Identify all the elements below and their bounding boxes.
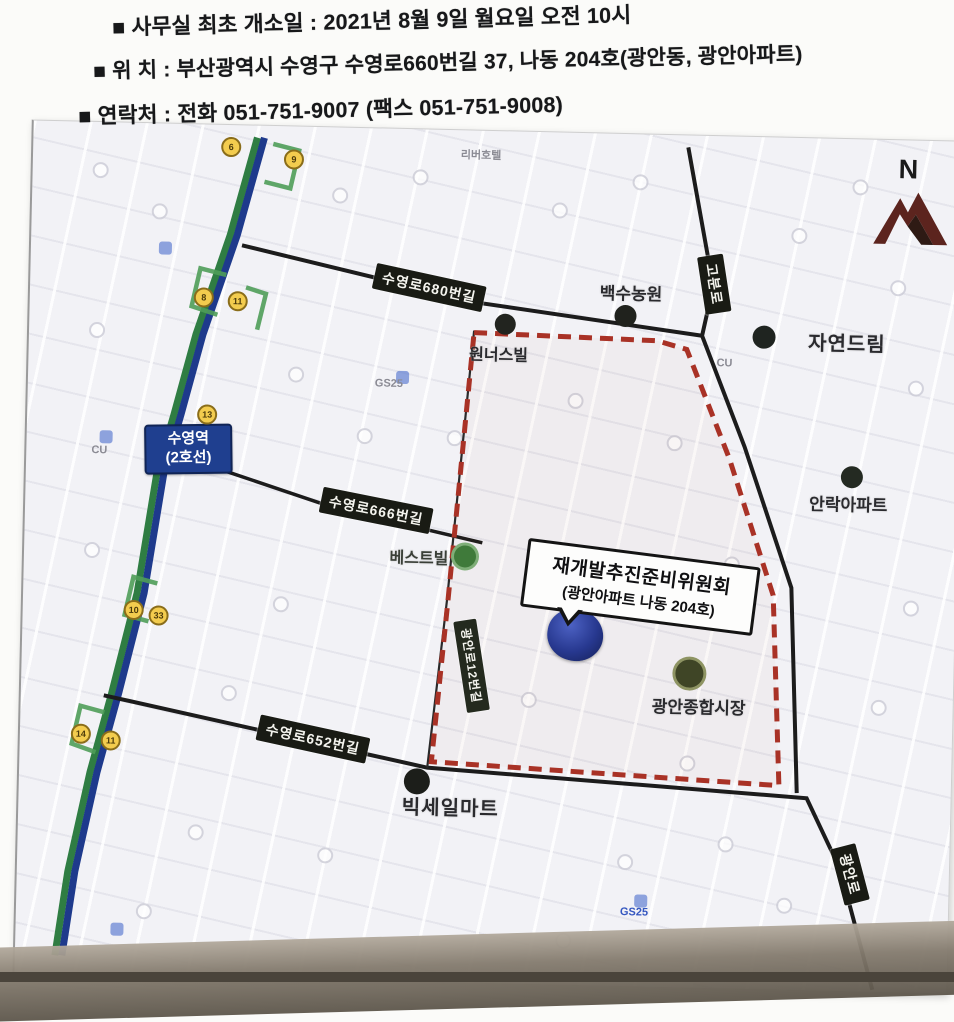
poi-dot-wonnersville <box>495 314 516 335</box>
station-suyeong-badge: 수영역 (2호선) <box>144 424 233 475</box>
minor-label-river-hotel: 리버호텔 <box>461 146 502 163</box>
poi-label-wonnersville: 원너스빌 <box>469 340 528 365</box>
notice-line-open-date: ■ 사무실 최초 개소일 : 2021년 8월 9일 월요일 오전 10시 <box>112 0 632 42</box>
minor-label-cu-1: CU <box>716 357 732 369</box>
bus-stop-badge: 10 <box>123 600 143 620</box>
north-label: N <box>869 154 950 187</box>
bus-stop-badge: 9 <box>284 149 304 169</box>
minor-label-gs25-2: GS25 <box>620 906 648 919</box>
road-label-666: 수영로666번길 <box>319 487 434 534</box>
road-label-680: 수영로680번길 <box>372 263 487 312</box>
station-name: 수영역 <box>148 430 228 450</box>
poi-label-baeksu-farm: 백수농원 <box>599 279 662 305</box>
poi-dot-anrak-apt <box>841 466 863 488</box>
poi-dot-gwangan-market <box>675 659 704 688</box>
poi-dot-best-ville <box>454 545 476 567</box>
poi-label-jayeon-dream: 자연드림 <box>808 327 886 358</box>
poi-label-anrak-apt: 안락아파트 <box>809 490 888 517</box>
bus-stop-badge: 13 <box>197 404 217 424</box>
notice-line-location: ■ 위 치 : 부산광역시 수영구 수영로660번길 37, 나동 204호(광… <box>93 38 803 85</box>
station-line: (2호선) <box>148 448 228 468</box>
office-callout: 재개발추진준비위원회 (광안아파트 나동 204호) <box>520 538 761 636</box>
bus-stop-badge: 33 <box>148 605 168 625</box>
minor-label-cu-2: CU <box>91 444 107 456</box>
road-label-gobunro: 고분로 <box>697 254 731 315</box>
road-label-652: 수영로652번길 <box>255 714 370 763</box>
photo-bottom-edge <box>0 972 954 982</box>
poi-label-best-ville: 베스트빌 <box>389 544 448 569</box>
bus-stop-badge: 8 <box>194 287 214 307</box>
road-label-gwanganro: 광안로 <box>830 843 870 905</box>
minor-label-gs25-1: GS25 <box>375 377 403 390</box>
poi-label-gwangan-market: 광안종합시장 <box>651 692 745 719</box>
bus-stop-badge: 14 <box>71 724 91 744</box>
poi-dot-baeksu-farm <box>614 305 636 327</box>
callout-pointer <box>555 607 583 628</box>
north-indicator: N <box>869 154 950 187</box>
road-label-west-street: 광안로12번길 <box>453 619 490 713</box>
bus-stop-badge: 11 <box>101 730 121 750</box>
poi-dot-jayeon-dream <box>752 325 776 349</box>
bus-stop-badge: 11 <box>228 291 248 311</box>
notice-header: ■ 사무실 최초 개소일 : 2021년 8월 9일 월요일 오전 10시 ■ … <box>0 0 953 1</box>
poi-label-bigsale-mart: 빅세일마트 <box>402 791 500 822</box>
map-photo: 수영역 (2호선) 수영로680번길 고분로 수영로666번길 수영로652번길… <box>12 120 954 995</box>
notice-line-contact: ■ 연락처 : 전화 051-751-9007 (팩스 051-751-9008… <box>78 88 563 131</box>
bus-stop-badge: 6 <box>221 137 241 157</box>
